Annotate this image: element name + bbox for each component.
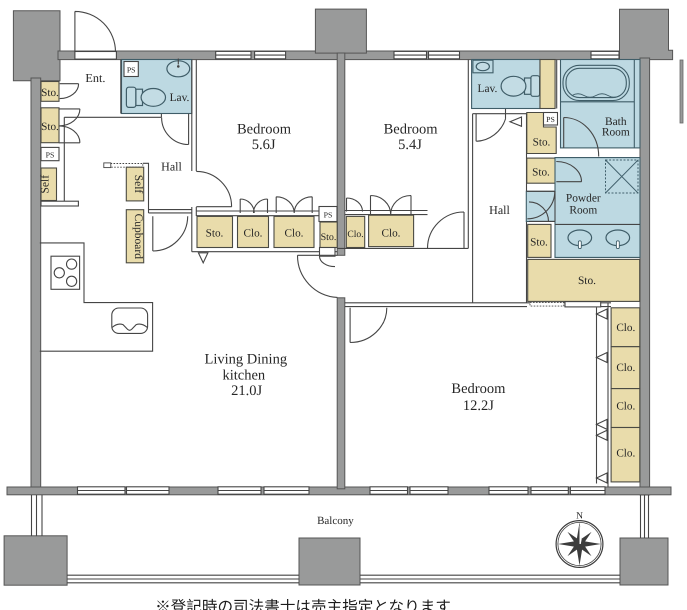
svg-text:Bedroom: Bedroom: [237, 122, 292, 138]
svg-text:Sto.: Sto.: [206, 228, 224, 240]
svg-text:Clo.: Clo.: [616, 322, 635, 334]
svg-text:21.0J: 21.0J: [231, 383, 262, 399]
svg-text:PS: PS: [127, 65, 136, 74]
svg-text:Powder: Powder: [566, 192, 601, 204]
svg-text:5.6J: 5.6J: [252, 137, 276, 153]
svg-text:Sto.: Sto.: [532, 167, 550, 179]
svg-text:Balcony: Balcony: [317, 515, 354, 527]
svg-text:N: N: [576, 512, 583, 522]
svg-text:Bedroom: Bedroom: [384, 122, 439, 138]
svg-text:Bedroom: Bedroom: [451, 381, 506, 397]
svg-text:Self: Self: [132, 175, 144, 194]
svg-text:Clo.: Clo.: [616, 362, 635, 374]
svg-text:12.2J: 12.2J: [463, 398, 494, 414]
svg-text:Living Dining: Living Dining: [205, 352, 288, 368]
svg-text:※登記時の司法書士は売主指定となります: ※登記時の司法書士は売主指定となります: [155, 598, 451, 610]
svg-text:Clo.: Clo.: [347, 229, 363, 240]
svg-text:Clo.: Clo.: [616, 401, 635, 413]
svg-text:Sto.: Sto.: [530, 237, 548, 249]
svg-text:Ent.: Ent.: [85, 71, 105, 85]
svg-text:Sto.: Sto.: [321, 232, 337, 243]
svg-text:Sto.: Sto.: [578, 275, 596, 287]
svg-text:Hall: Hall: [161, 160, 182, 174]
svg-text:Sto.: Sto.: [41, 121, 59, 133]
svg-text:Clo.: Clo.: [285, 228, 304, 240]
svg-text:Lav.: Lav.: [477, 83, 497, 95]
svg-text:Hall: Hall: [489, 203, 510, 217]
svg-text:Lav.: Lav.: [170, 92, 190, 104]
svg-text:Clo.: Clo.: [382, 228, 401, 240]
svg-text:kitchen: kitchen: [222, 367, 265, 383]
svg-text:Clo.: Clo.: [616, 448, 635, 460]
svg-text:PS: PS: [46, 151, 55, 160]
svg-text:Self: Self: [40, 175, 52, 194]
svg-text:5.4J: 5.4J: [398, 137, 422, 153]
svg-text:Room: Room: [569, 205, 597, 217]
svg-text:Sto.: Sto.: [533, 137, 551, 149]
svg-text:Cupboard: Cupboard: [132, 214, 144, 260]
svg-text:Sto.: Sto.: [41, 87, 59, 99]
svg-text:PS: PS: [546, 115, 555, 124]
svg-text:PS: PS: [324, 211, 333, 220]
svg-text:Clo.: Clo.: [244, 228, 263, 240]
svg-text:Room: Room: [602, 127, 630, 139]
